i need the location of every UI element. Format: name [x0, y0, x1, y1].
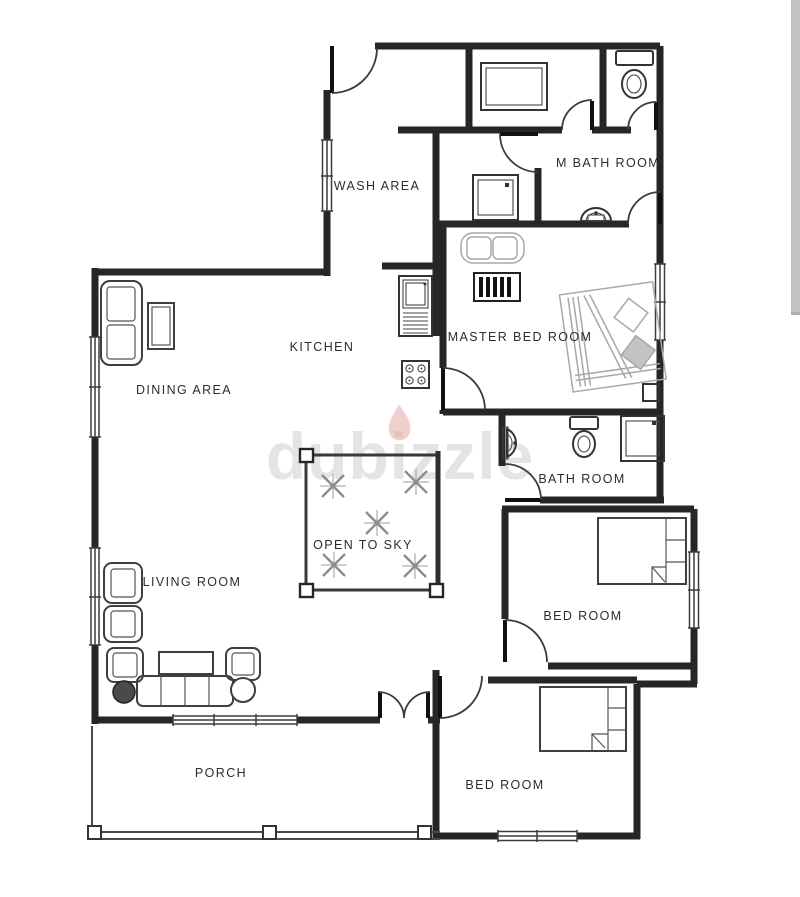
scrollbar-thumb[interactable]	[791, 0, 800, 314]
plant-icon	[321, 552, 347, 578]
living-armchair-1	[104, 563, 142, 603]
porch-column	[418, 826, 431, 839]
room-label-porch: PORCH	[195, 766, 247, 780]
mbath-sink	[581, 208, 611, 221]
living-pouf-dark	[113, 681, 135, 703]
master-bedroom-door	[443, 368, 485, 410]
wash-shower	[473, 175, 518, 220]
porch-column	[88, 826, 101, 839]
porch-column	[263, 826, 276, 839]
entry-double-door	[378, 692, 430, 718]
window-bedroom-bottom	[498, 830, 577, 842]
bedroom-mid-door	[505, 620, 547, 662]
room-label-wash-area: WASH AREA	[334, 179, 420, 193]
bath-toilet	[570, 417, 598, 457]
bed-mid	[598, 518, 686, 584]
living-armchair-3	[107, 648, 143, 682]
living-armchair-2	[104, 606, 142, 642]
store-room-door	[562, 100, 592, 130]
window-bedroom-right	[688, 552, 700, 628]
flame-icon	[389, 405, 411, 440]
kitchen-sink	[399, 276, 432, 336]
bed-bottom	[540, 687, 626, 751]
room-label-kitchen: KITCHEN	[290, 340, 355, 354]
living-pouf-light	[231, 678, 255, 702]
courtyard-pillar	[300, 449, 313, 462]
scrollbar	[791, 0, 800, 315]
wash-mbath-door	[500, 134, 538, 172]
dining-table	[148, 303, 174, 349]
dining-sofa	[101, 281, 142, 365]
room-label-open-sky: OPEN TO SKY	[313, 538, 413, 552]
stove	[402, 361, 429, 388]
entry-door-top	[332, 46, 377, 93]
porch-structure	[88, 726, 440, 839]
living-coffee-table	[159, 652, 213, 674]
living-armchair-4	[226, 648, 260, 680]
mbath-door	[628, 192, 660, 224]
window-living-left	[89, 548, 101, 645]
master-dresser	[474, 273, 520, 301]
plant-icon	[364, 510, 390, 536]
toilet-top	[616, 51, 653, 98]
window-wash-left	[321, 140, 333, 211]
courtyard-pillar	[300, 584, 313, 597]
floor-plan-drawing: dubizzle	[0, 0, 800, 897]
room-label-master-bed: MASTER BED ROOM	[448, 330, 593, 344]
window-dining-left	[89, 337, 101, 437]
store-table	[481, 63, 547, 110]
room-label-living: LIVING ROOM	[143, 575, 242, 589]
plant-icon	[402, 553, 428, 579]
plant-icon	[403, 469, 429, 495]
room-label-dining: DINING AREA	[136, 383, 232, 397]
master-sofa	[461, 233, 524, 263]
living-sofa	[137, 676, 233, 706]
floor-plan-page: dubizzle	[0, 0, 800, 897]
room-label-bath: BATH ROOM	[538, 472, 625, 486]
bedroom-bottom-door	[440, 676, 482, 718]
room-label-bed-bottom: BED ROOM	[465, 778, 544, 792]
room-label-bed-mid: BED ROOM	[543, 609, 622, 623]
room-label-m-bath: M BATH ROOM	[556, 156, 660, 170]
scrollbar-thumb-edge	[791, 312, 800, 315]
plant-icon	[320, 473, 346, 499]
courtyard-pillar	[430, 584, 443, 597]
window-living-bottom	[173, 714, 297, 726]
toilet-room-door	[628, 102, 656, 130]
